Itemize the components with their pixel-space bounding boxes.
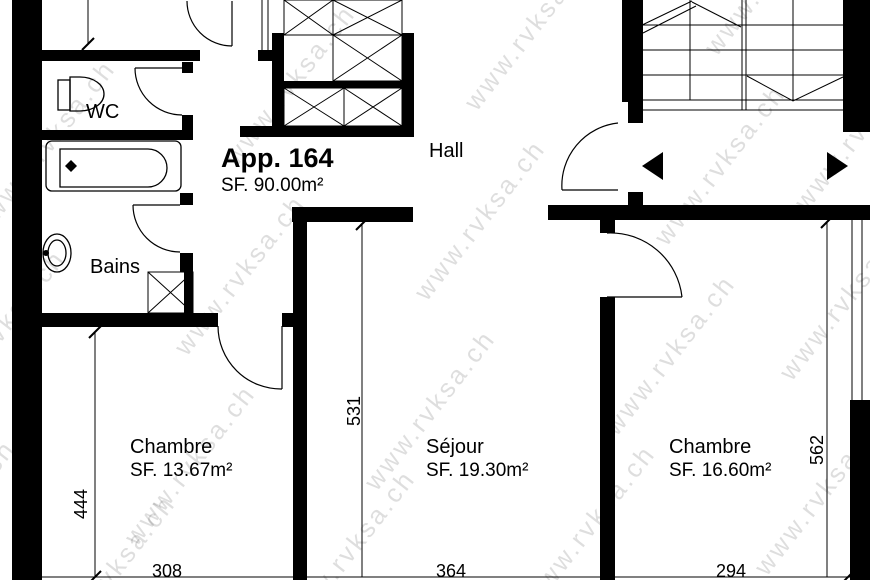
- dim-sejour-width: 364: [436, 562, 466, 580]
- floor-plan: www.rvksa.chwww.rvksa.chwww.rvksa.chwww.…: [0, 0, 870, 580]
- bains-label: Bains: [90, 257, 140, 277]
- hall-label: Hall: [429, 141, 463, 161]
- sejour-label: Séjour: [426, 437, 484, 457]
- chambre2-area: SF. 16.60m²: [669, 461, 771, 480]
- wc-label: WC: [86, 102, 119, 122]
- sejour-area: SF. 19.30m²: [426, 461, 528, 480]
- labels-layer: WC Bains App. 164 SF. 90.00m² Hall Chamb…: [0, 0, 870, 580]
- dim-chambre2-width: 294: [716, 562, 746, 580]
- dim-chambre2-height: 562: [808, 435, 826, 465]
- dim-sejour-height: 531: [345, 396, 363, 426]
- chambre1-label: Chambre: [130, 437, 212, 457]
- dim-chambre1-width: 308: [152, 562, 182, 580]
- apartment-area: SF. 90.00m²: [221, 176, 323, 195]
- dim-chambre1-height: 444: [72, 489, 90, 519]
- chambre1-area: SF. 13.67m²: [130, 461, 232, 480]
- apartment-title: App. 164: [221, 145, 334, 172]
- chambre2-label: Chambre: [669, 437, 751, 457]
